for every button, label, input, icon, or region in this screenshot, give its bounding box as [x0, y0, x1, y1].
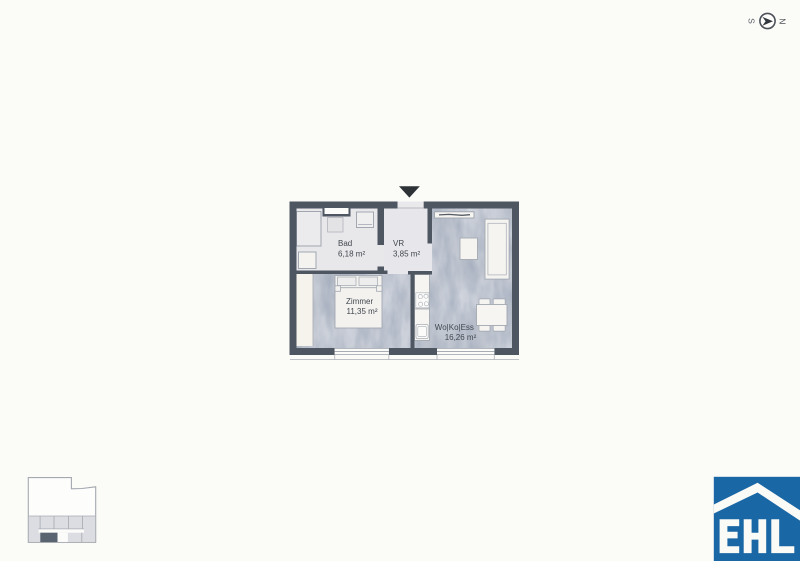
svg-text:3,85 m²: 3,85 m² — [393, 250, 420, 259]
svg-text:Bad: Bad — [338, 239, 352, 248]
svg-text:Wo|Ko|Ess: Wo|Ko|Ess — [435, 323, 474, 332]
svg-text:N: N — [778, 18, 788, 24]
svg-text:6,18 m²: 6,18 m² — [338, 250, 365, 259]
svg-text:VR: VR — [393, 239, 404, 248]
svg-text:Zimmer: Zimmer — [346, 297, 373, 306]
svg-text:11,35 m²: 11,35 m² — [347, 307, 378, 316]
svg-text:16,26 m²: 16,26 m² — [445, 333, 477, 342]
svg-text:S: S — [747, 18, 757, 24]
